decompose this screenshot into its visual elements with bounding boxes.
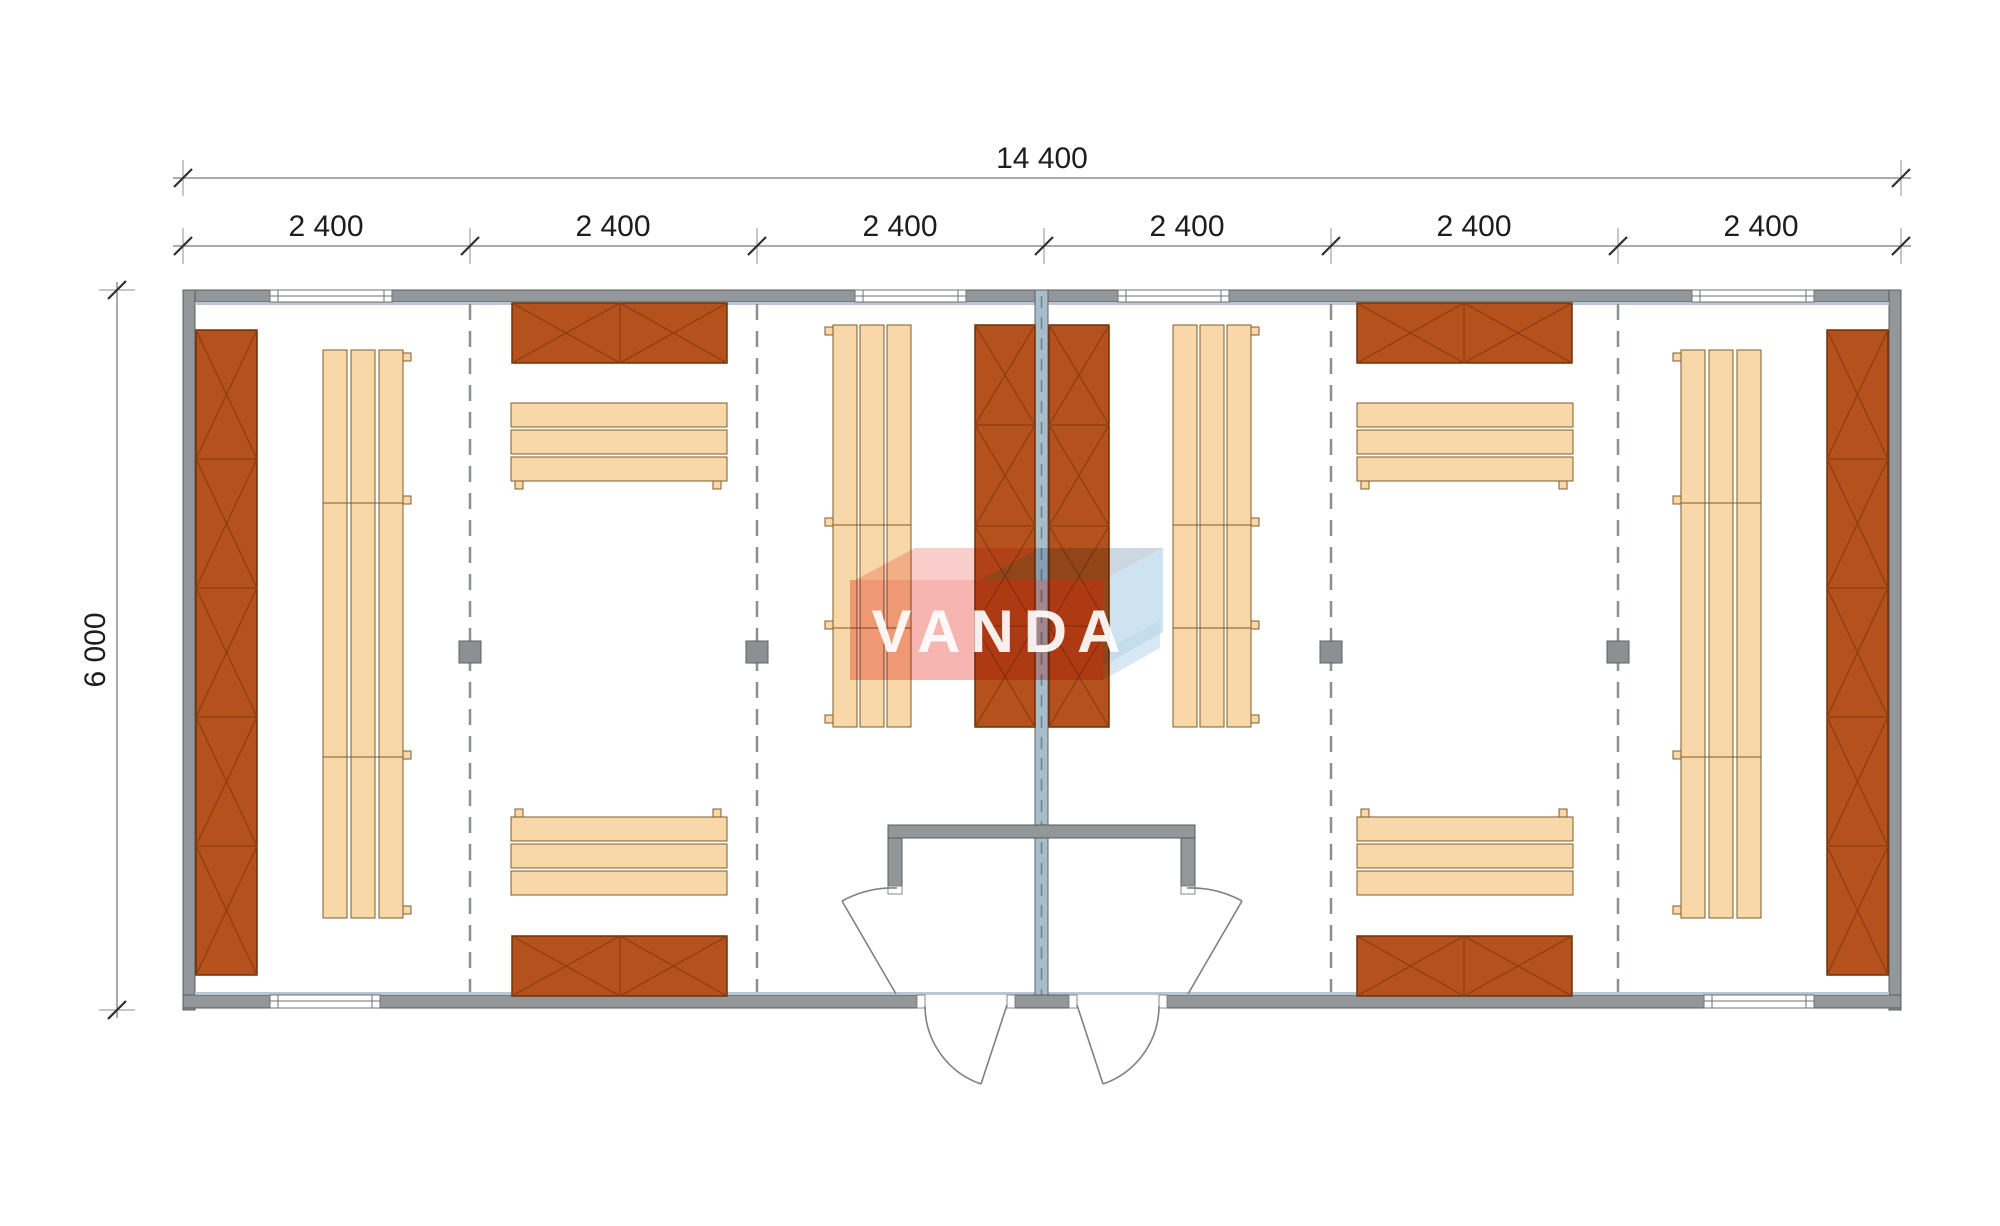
wardrobe-locker-unit — [1827, 330, 1888, 975]
bench-unit — [511, 403, 727, 489]
door-sill — [1069, 995, 1077, 1008]
window — [855, 290, 966, 302]
dim-depth-label: 6 000 — [79, 612, 112, 687]
window — [270, 290, 392, 302]
bench-unit — [1673, 350, 1761, 918]
dim-module-label-3: 2 400 — [862, 210, 937, 243]
dim-total-width-label: 14 400 — [996, 142, 1088, 175]
structural-post — [459, 641, 481, 663]
window — [1692, 290, 1814, 302]
wall-left — [183, 290, 195, 1010]
structural-post — [1320, 641, 1342, 663]
bench-unit — [1357, 809, 1573, 895]
dim-module-label-1: 2 400 — [288, 210, 363, 243]
structural-post — [746, 641, 768, 663]
dim-module-label-6: 2 400 — [1723, 210, 1798, 243]
wardrobe-locker-unit — [512, 303, 727, 363]
door-sill — [1007, 995, 1015, 1008]
dim-module-label-5: 2 400 — [1436, 210, 1511, 243]
bench-unit — [323, 350, 411, 918]
window — [1704, 995, 1814, 1008]
door-swing — [1077, 1005, 1159, 1084]
vestibule-wall-west — [888, 838, 902, 886]
window — [270, 995, 380, 1008]
door-swing — [842, 888, 897, 994]
floor-plan-page: 14 400 2 400 2 400 2 400 2 400 2 400 2 4… — [0, 0, 2000, 1226]
bench-unit — [1173, 325, 1259, 727]
vanda-watermark-text: VANDA — [872, 598, 1131, 665]
bench-unit — [511, 809, 727, 895]
wall-central-foot — [1015, 995, 1069, 1008]
wardrobe-locker-unit — [1357, 936, 1572, 996]
dim-module-label-2: 2 400 — [575, 210, 650, 243]
window — [1118, 290, 1229, 302]
door-swing — [1187, 888, 1242, 994]
door-sill — [917, 995, 925, 1008]
wall-right — [1889, 290, 1901, 1010]
dim-module-label-4: 2 400 — [1149, 210, 1224, 243]
door-sill — [1159, 995, 1167, 1008]
floor-plan-svg: 14 400 2 400 2 400 2 400 2 400 2 400 2 4… — [0, 0, 2000, 1226]
wardrobe-locker-unit — [196, 330, 257, 975]
vestibule-wall-east — [1181, 838, 1195, 886]
watermark-logo: VANDA — [850, 548, 1163, 680]
bench-unit — [1357, 403, 1573, 489]
wardrobe-locker-unit — [512, 936, 727, 996]
wardrobe-locker-unit — [1357, 303, 1572, 363]
door-swing — [925, 1005, 1007, 1084]
vestibule-wall-top — [888, 825, 1195, 838]
structural-post — [1607, 641, 1629, 663]
